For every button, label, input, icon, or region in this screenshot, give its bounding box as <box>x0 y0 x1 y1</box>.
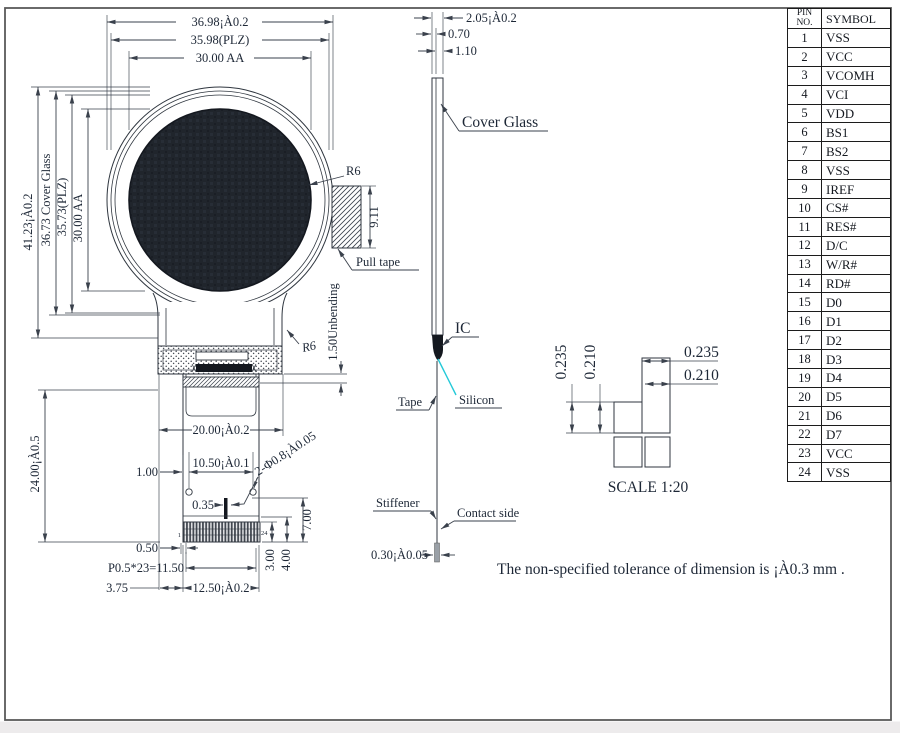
dim-side-glass: 1.10 <box>455 44 477 58</box>
cover-glass-label: Cover Glass <box>462 114 538 131</box>
pin-number-cell: 5 <box>788 104 822 123</box>
dim-side-panel: 0.70 <box>448 27 470 41</box>
dim-pin-pitch: P0.5*23=11.50 <box>108 561 184 575</box>
pin-number-cell: 2 <box>788 47 822 66</box>
pin-number-cell: 19 <box>788 369 822 388</box>
pin-table-row: 4 VCI <box>788 85 891 104</box>
dim-edge-hole: 1.00 <box>136 465 158 479</box>
connector-pin1-label: 1 <box>178 532 181 539</box>
dim-hole-pitch: 10.50¡À0.1 <box>193 456 250 470</box>
pin-symbol-cell: D4 <box>822 369 891 388</box>
pin-number-cell: 20 <box>788 387 822 406</box>
pin-table-row: 6 BS1 <box>788 123 891 142</box>
dim-height-aa: 30.00 AA <box>71 194 85 243</box>
pull-tape-label: Pull tape <box>356 255 401 269</box>
dim-375: 3.75 <box>106 581 128 595</box>
pin-symbol-cell: D7 <box>822 425 891 444</box>
pin-symbol-cell: VCOMH <box>822 66 891 85</box>
dim-tail-width: 20.00¡À0.2 <box>193 423 250 437</box>
silicon-label: Silicon <box>459 393 495 407</box>
dim-pull-tape: 9.11 <box>367 206 381 227</box>
dim-height-plz: 35.73(PLZ) <box>55 178 69 237</box>
scale-label: SCALE 1:20 <box>608 479 689 496</box>
pin-table-row: 15 D0 <box>788 293 891 312</box>
dim-holes: 2-Φ0.8¡À0.05 <box>252 429 319 479</box>
pin-table-row: 16 D1 <box>788 312 891 331</box>
side-view-outline <box>432 78 443 335</box>
dim-slot: 0.35 <box>192 498 214 512</box>
pin-symbol-cell: D6 <box>822 406 891 425</box>
pin-symbol-cell: RD# <box>822 274 891 293</box>
pin-symbol-cell: D3 <box>822 350 891 369</box>
pin-table-header-symbol: SYMBOL <box>822 9 891 29</box>
pin-symbol-cell: VCI <box>822 85 891 104</box>
ic-label: IC <box>455 320 471 337</box>
pin-table-row: 9 IREF <box>788 180 891 199</box>
pin-symbol-cell: D2 <box>822 331 891 350</box>
pin-symbol-cell: BS1 <box>822 123 891 142</box>
silicon-line <box>438 359 456 395</box>
band-slot <box>196 352 248 360</box>
side-view-extension-lines <box>432 12 443 74</box>
pin-table-row: 18 D3 <box>788 350 891 369</box>
engineering-drawing-sheet: 1 24 <box>0 0 900 733</box>
dim-width-aa: 30.00 AA <box>196 51 245 65</box>
pin-number-cell: 14 <box>788 274 822 293</box>
pin-table-row: 24 VSS <box>788 463 891 482</box>
pin-number-cell: 18 <box>788 350 822 369</box>
pin-symbol-cell: IREF <box>822 180 891 199</box>
pin-symbol-cell: CS# <box>822 199 891 218</box>
pin-table-row: 12 D/C <box>788 236 891 255</box>
connector <box>183 522 260 542</box>
dim-stiffener-thickness: 0.30¡À0.05 <box>371 548 428 562</box>
pin-table-row: 1 VSS <box>788 29 891 48</box>
dim-contact-4: 4.00 <box>279 549 293 571</box>
drawing-canvas: 1 24 <box>0 0 900 733</box>
pin-table-row: 17 D2 <box>788 331 891 350</box>
pin-symbol-cell: VSS <box>822 29 891 48</box>
pin-number-cell: 6 <box>788 123 822 142</box>
contact-end-bar <box>435 543 440 562</box>
pin-table-header-row: PIN NO. SYMBOL <box>788 9 891 29</box>
detail-dim-h2: 0.210 <box>684 367 719 384</box>
pin-table-row: 5 VDD <box>788 104 891 123</box>
tail-hole-right <box>250 489 256 495</box>
pin-number-cell: 23 <box>788 444 822 463</box>
pin-table-row: 11 RES# <box>788 217 891 236</box>
active-area-circle <box>129 109 311 291</box>
tolerance-note: The non-specified tolerance of dimension… <box>497 561 845 578</box>
pin-symbol-cell: RES# <box>822 217 891 236</box>
pin-number-cell: 15 <box>788 293 822 312</box>
pin-number-cell: 22 <box>788 425 822 444</box>
pin-number-cell: 11 <box>788 217 822 236</box>
pin-table-row: 7 BS2 <box>788 142 891 161</box>
pin-symbol-cell: VCC <box>822 47 891 66</box>
pin-number-cell: 10 <box>788 199 822 218</box>
pin-symbol-cell: VDD <box>822 104 891 123</box>
dim-height-cover: 36.73 Cover Glass <box>39 154 53 247</box>
dim-side-total: 2.05¡À0.2 <box>466 11 517 25</box>
pin-table-row: 21 D6 <box>788 406 891 425</box>
pin-table-row: 22 D7 <box>788 425 891 444</box>
pixel-detail-view: 0.235 0.210 0.235 0.210 SCALE 1:20 <box>553 344 719 496</box>
connector-pin24-label: 24 <box>261 530 268 537</box>
pin-table-row: 14 RD# <box>788 274 891 293</box>
dim-fpc-length: 24.00¡À0.5 <box>28 436 42 493</box>
tape-label: Tape <box>398 395 423 409</box>
band-dark-bar <box>196 364 252 372</box>
detail-dim-v1: 0.235 <box>553 344 570 379</box>
pin-number-cell: 4 <box>788 85 822 104</box>
pin-number-cell: 24 <box>788 463 822 482</box>
dim-half: 0.50 <box>136 541 158 555</box>
dim-width-total: 36.98¡À0.2 <box>192 15 249 29</box>
pin-table-row: 20 D5 <box>788 387 891 406</box>
pixel-squares <box>614 358 670 467</box>
neck-mask <box>158 302 284 345</box>
pin-number-cell: 13 <box>788 255 822 274</box>
pin-symbol-cell: VSS <box>822 161 891 180</box>
pin-symbol-cell: D1 <box>822 312 891 331</box>
pin-number-cell: 3 <box>788 66 822 85</box>
pin-number-cell: 8 <box>788 161 822 180</box>
pin-symbol-cell: BS2 <box>822 142 891 161</box>
radius-top-label: R6 <box>346 164 361 178</box>
pin-number-cell: 16 <box>788 312 822 331</box>
stiffener-label: Stiffener <box>376 496 420 510</box>
ic-body <box>432 335 443 361</box>
pin-number-cell: 12 <box>788 236 822 255</box>
pin-table-row: 10 CS# <box>788 199 891 218</box>
pin-table-row: 23 VCC <box>788 444 891 463</box>
bonding-band <box>158 346 282 374</box>
pin-table: PIN NO. SYMBOL 1 VSS 2 VCC 3 VCOMH 4 VCI… <box>787 8 891 482</box>
dim-width-plz: 35.98(PLZ) <box>191 33 250 47</box>
pin-symbol-cell: D0 <box>822 293 891 312</box>
side-view: 2.05¡À0.2 0.70 1.10 Cover Glass IC Tape … <box>371 11 548 562</box>
pin-symbol-cell: D/C <box>822 236 891 255</box>
side-view-dimension-lines <box>373 18 548 555</box>
unbending-label: 1.50Unbending <box>326 283 340 361</box>
pin-symbol-cell: D5 <box>822 387 891 406</box>
contact-side-label: Contact side <box>457 506 520 520</box>
dim-contact-7: 7.00 <box>300 509 314 531</box>
pin-table-row: 2 VCC <box>788 47 891 66</box>
dim-connector: 12.50¡À0.2 <box>193 581 250 595</box>
detail-dim-v2: 0.210 <box>582 344 599 379</box>
tail-hole-left <box>186 489 192 495</box>
pin-symbol-cell: VSS <box>822 463 891 482</box>
pin-table-row: 13 W/R# <box>788 255 891 274</box>
pin-table-row: 3 VCOMH <box>788 66 891 85</box>
pin-number-cell: 21 <box>788 406 822 425</box>
pin-number-cell: 7 <box>788 142 822 161</box>
detail-dim-h1: 0.235 <box>684 344 719 361</box>
pin-number-cell: 17 <box>788 331 822 350</box>
pin-table-header-no: PIN NO. <box>788 9 822 29</box>
tail-hatch-strip <box>183 377 259 387</box>
pin-table-row: 8 VSS <box>788 161 891 180</box>
pin-number-cell: 1 <box>788 29 822 48</box>
dim-contact-3: 3.00 <box>263 549 277 571</box>
radius-bottom-label: R6 <box>300 338 318 355</box>
pin-symbol-cell: W/R# <box>822 255 891 274</box>
pin-number-cell: 9 <box>788 180 822 199</box>
pin-table-row: 19 D4 <box>788 369 891 388</box>
dim-height-total: 41.23¡À0.2 <box>21 194 35 251</box>
front-view: 1 24 <box>21 15 419 595</box>
pin-symbol-cell: VCC <box>822 444 891 463</box>
pull-tape-rect <box>332 186 361 248</box>
